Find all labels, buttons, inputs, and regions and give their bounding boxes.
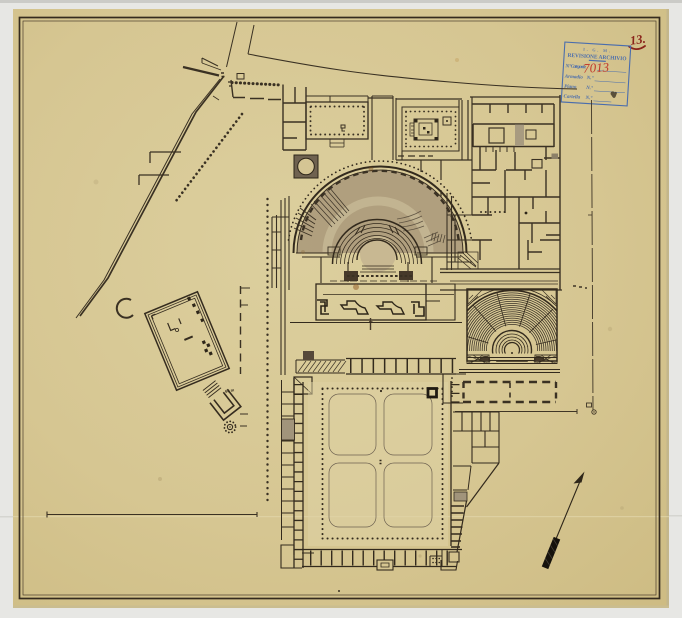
svg-text:N.°: N.° bbox=[585, 86, 593, 91]
svg-text:13.: 13. bbox=[629, 32, 646, 48]
svg-text:7013: 7013 bbox=[583, 59, 610, 75]
svg-text:N.°: N.° bbox=[586, 76, 594, 81]
svg-text:Cartella: Cartella bbox=[563, 95, 580, 101]
